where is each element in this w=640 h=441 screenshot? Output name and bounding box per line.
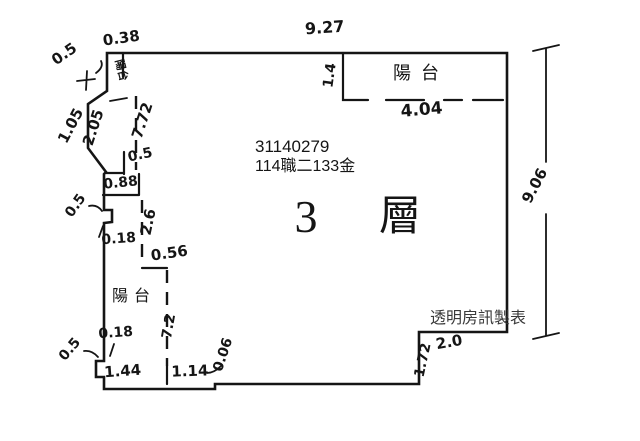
dim-top-width: 9.27 xyxy=(304,17,345,39)
dim-bottom-left-notch: 0.5 xyxy=(56,335,84,364)
balcony-label-top-left: 陽台 xyxy=(112,58,131,83)
dim-bottom-width-mid: 1.14 xyxy=(171,361,209,380)
floor-unit-text: 層 xyxy=(379,194,421,240)
dim-bottom-right-width: 2.0 xyxy=(434,331,463,353)
plus-mark xyxy=(77,71,95,90)
strike-mark xyxy=(110,98,127,101)
dim-balcony-right-depth: 1.4 xyxy=(320,62,339,89)
dim-top-left-offset: 0.5 xyxy=(48,39,80,69)
dim-top-left-width: 0.38 xyxy=(102,27,141,50)
dim-lower-height: 7.2 xyxy=(159,313,179,340)
parcel-id-text: 31140279 xyxy=(255,137,329,156)
floor-number-text: 3 xyxy=(295,191,318,242)
floor-plan-drawing: 0.38 9.27 0.5 1.4 4.04 1.05 2.05 7.72 0.… xyxy=(0,0,640,441)
dim-right-height: 9.06 xyxy=(518,165,551,206)
dim-bottom-right-height: 1.72 xyxy=(412,342,435,379)
dim-bottom-step: 0.06 xyxy=(210,336,236,374)
dim-mid-offset-upper: 0.18 xyxy=(101,230,137,248)
dim-balcony-right-width: 4.04 xyxy=(400,98,444,122)
dim-left-mid-notch: 0.5 xyxy=(62,191,89,221)
balcony-label-bottom-left: 陽台 xyxy=(112,287,156,305)
wall-balcony-right-side xyxy=(343,53,368,100)
dim-box-width: 0.88 xyxy=(103,173,139,193)
dim-step-width: 0.56 xyxy=(150,242,189,265)
balcony-label-top-right: 陽台 xyxy=(393,63,449,83)
dim-mid-height: 2.6 xyxy=(137,207,160,237)
dim-left-upper-height: 7.72 xyxy=(128,100,157,141)
dim-bottom-width-left: 1.44 xyxy=(104,361,142,382)
floor-plan-sketch: 0.38 9.27 0.5 1.4 4.04 1.05 2.05 7.72 0.… xyxy=(0,0,640,441)
leader-mid-notch xyxy=(89,206,102,211)
leader-bottom-notch xyxy=(84,351,98,357)
zone-text: 114職二133金 xyxy=(255,157,355,175)
comma-leader xyxy=(96,61,102,73)
watermark-text: 透明房訊製表 xyxy=(430,309,526,327)
dim-upper-stub: 0.5 xyxy=(126,145,154,166)
dim-mid-offset-lower: 0.18 xyxy=(98,324,134,342)
tick-018-lower xyxy=(110,344,114,356)
